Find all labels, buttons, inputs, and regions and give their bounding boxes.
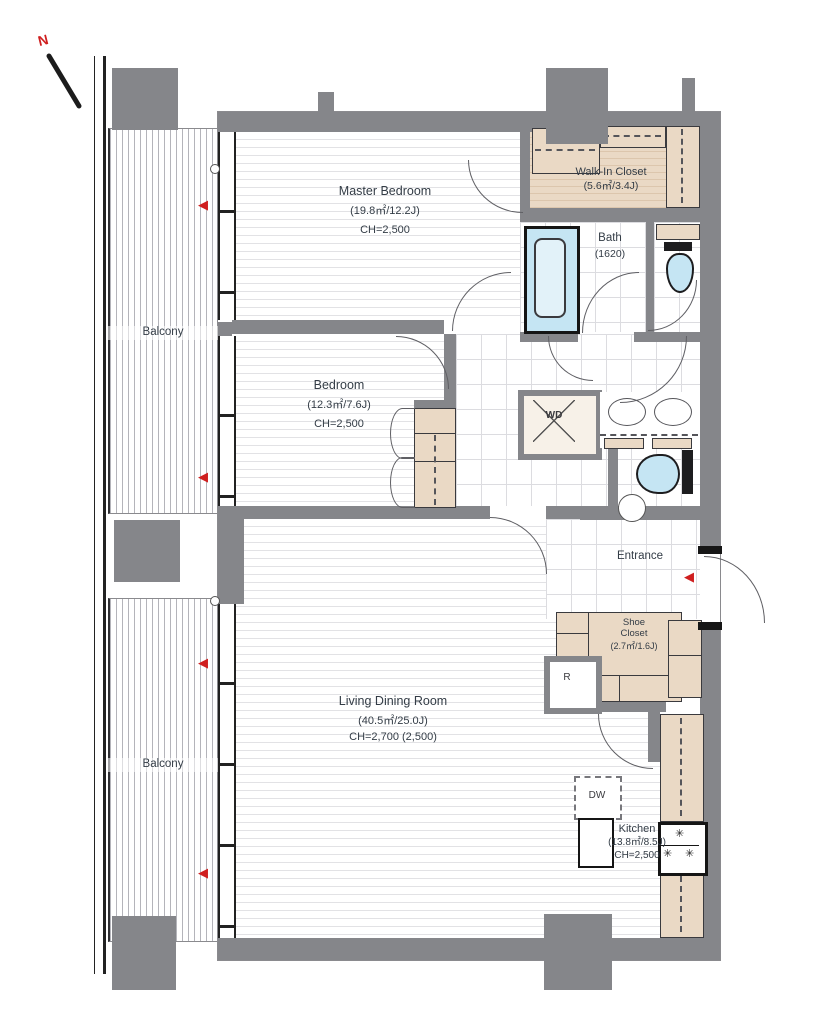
balcony-upper: [108, 128, 221, 514]
wic-shelf: [600, 126, 666, 148]
entrance-cabinet: [556, 612, 590, 658]
bath-label: Bath (1620): [578, 232, 642, 260]
wall-segment: [218, 938, 720, 960]
wall-segment: [318, 92, 334, 114]
balcony-lower-label: Balcony: [108, 758, 218, 772]
hanger-rail: [603, 135, 661, 137]
property-line: [94, 56, 106, 974]
bathtub-inner: [534, 238, 566, 318]
cabinet-shelf-line: [669, 655, 701, 656]
wall-segment: [218, 322, 232, 336]
kitchen-counter: [660, 872, 704, 938]
sink: [654, 398, 692, 426]
vanity-drawer: [604, 438, 644, 449]
wall-segment: [608, 446, 618, 512]
stove-burner-icon: ✳: [685, 847, 694, 860]
drain-circle: [210, 164, 220, 174]
refrigerator-box: R: [544, 656, 602, 714]
entrance-arrow-icon: ◀: [684, 570, 694, 583]
bifold-door-arc: [390, 457, 415, 508]
pillar: [114, 520, 180, 582]
window: [218, 336, 236, 506]
north-needle-icon: [42, 50, 88, 112]
toilet: [636, 454, 680, 494]
bedroom-label: Bedroom (12.3㎡/7.6J) CH=2,500: [244, 378, 434, 431]
refrigerator-label: R: [550, 672, 584, 683]
toilet-tank: [664, 242, 692, 251]
dishwasher-box: DW: [574, 776, 622, 820]
evacuation-arrow-icon: ◀: [198, 656, 208, 669]
evacuation-arrow-icon: ◀: [198, 198, 208, 211]
vanity: [600, 392, 700, 448]
vanity-drawer: [652, 438, 692, 449]
north-label: N: [36, 31, 50, 49]
pillar: [546, 68, 608, 144]
wall-segment: [218, 506, 244, 604]
entrance-label: Entrance: [592, 550, 688, 564]
door-jamb: [698, 622, 722, 630]
evacuation-arrow-icon: ◀: [198, 470, 208, 483]
pillar: [112, 916, 176, 990]
closet-shelf-line: [415, 433, 455, 434]
counter-edge: [680, 876, 682, 932]
counter-edge: [680, 718, 682, 816]
entrance-door-arc: [704, 556, 765, 623]
kitchen-counter: [660, 714, 704, 822]
hanger-rail: [434, 435, 436, 505]
bathtub: [524, 226, 580, 334]
cabinet-shelf-line: [619, 675, 620, 701]
washer-dryer-icon: [533, 400, 575, 442]
drain-circle: [210, 596, 220, 606]
pillar: [112, 68, 178, 130]
toilet-tank: [682, 450, 693, 494]
door-jamb: [698, 546, 722, 554]
vanity-counter-edge: [600, 434, 698, 436]
balcony-upper-label: Balcony: [108, 326, 218, 340]
hanger-rail: [535, 149, 595, 151]
wall-segment: [520, 208, 700, 222]
dishwasher-label: DW: [576, 790, 618, 801]
wall-segment: [232, 320, 444, 334]
washer-dryer-label: WD: [524, 410, 584, 421]
window: [218, 604, 236, 938]
master-bedroom-label: Master Bedroom (19.8㎡/12.2J) CH=2,500: [260, 184, 510, 237]
wall-segment: [700, 112, 720, 553]
window: [218, 132, 236, 320]
wall-segment: [682, 78, 695, 114]
wall-segment: [546, 506, 582, 519]
kitchen-label: Kitchen (13.8㎡/8.5J) CH=2,500: [594, 823, 680, 862]
round-basin: [618, 494, 646, 522]
shoe-closet-label: Shoe Closet (2.7㎡/1.6J): [590, 617, 678, 652]
walk-in-closet-label: Walk-In Closet (5.6㎡/3.4J): [528, 166, 694, 193]
washer-dryer-box: WD: [518, 390, 602, 460]
toilet-2: [636, 450, 696, 494]
pillar: [544, 914, 612, 990]
entrance-floor: [546, 519, 700, 619]
toilet-shelf: [656, 224, 700, 240]
floorplan-canvas: N Balcony Balcony: [0, 0, 816, 1024]
evacuation-arrow-icon: ◀: [198, 866, 208, 879]
living-dining-label: Living Dining Room (40.5㎡/25.0J) CH=2,70…: [278, 694, 508, 744]
cabinet-shelf-line: [557, 633, 589, 634]
